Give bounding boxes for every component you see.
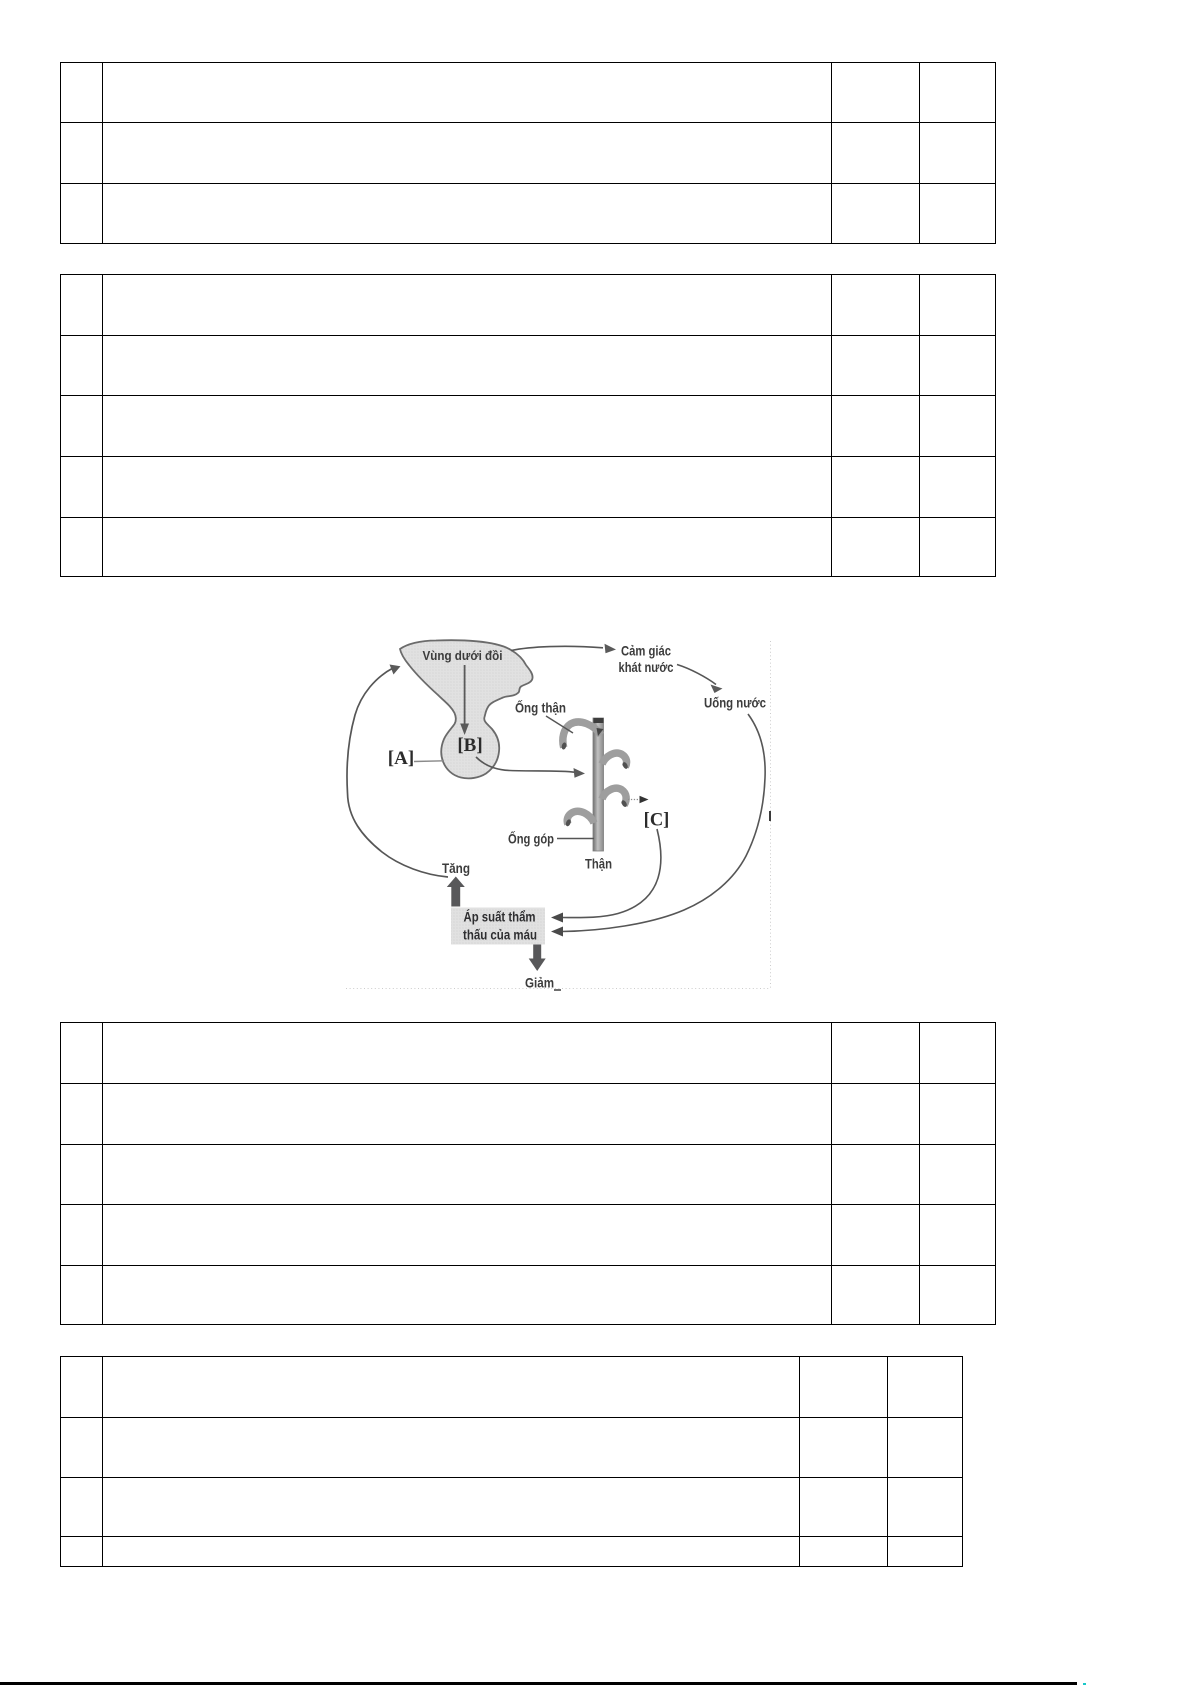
svg-text:Thận: Thận [585,856,612,872]
svg-text:[A]: [A] [388,748,414,769]
svg-text:Vùng dưới đồi: Vùng dưới đồi [423,648,503,663]
svg-text:Ống góp: Ống góp [508,832,554,847]
svg-text:khát nước: khát nước [619,660,674,675]
svg-text:Giảm: Giảm [525,976,554,991]
svg-text:Cảm giác: Cảm giác [621,644,671,659]
svg-text:thấu của máu: thấu của máu [463,928,537,943]
svg-text:[B]: [B] [457,735,482,756]
svg-text:Áp suất thẩm: Áp suất thẩm [464,910,536,925]
svg-text:Uống nước: Uống nước [704,696,766,711]
svg-text:Ống thận: Ống thận [515,701,566,716]
svg-text:Tăng: Tăng [442,861,470,876]
svg-text:[C]: [C] [644,811,670,831]
